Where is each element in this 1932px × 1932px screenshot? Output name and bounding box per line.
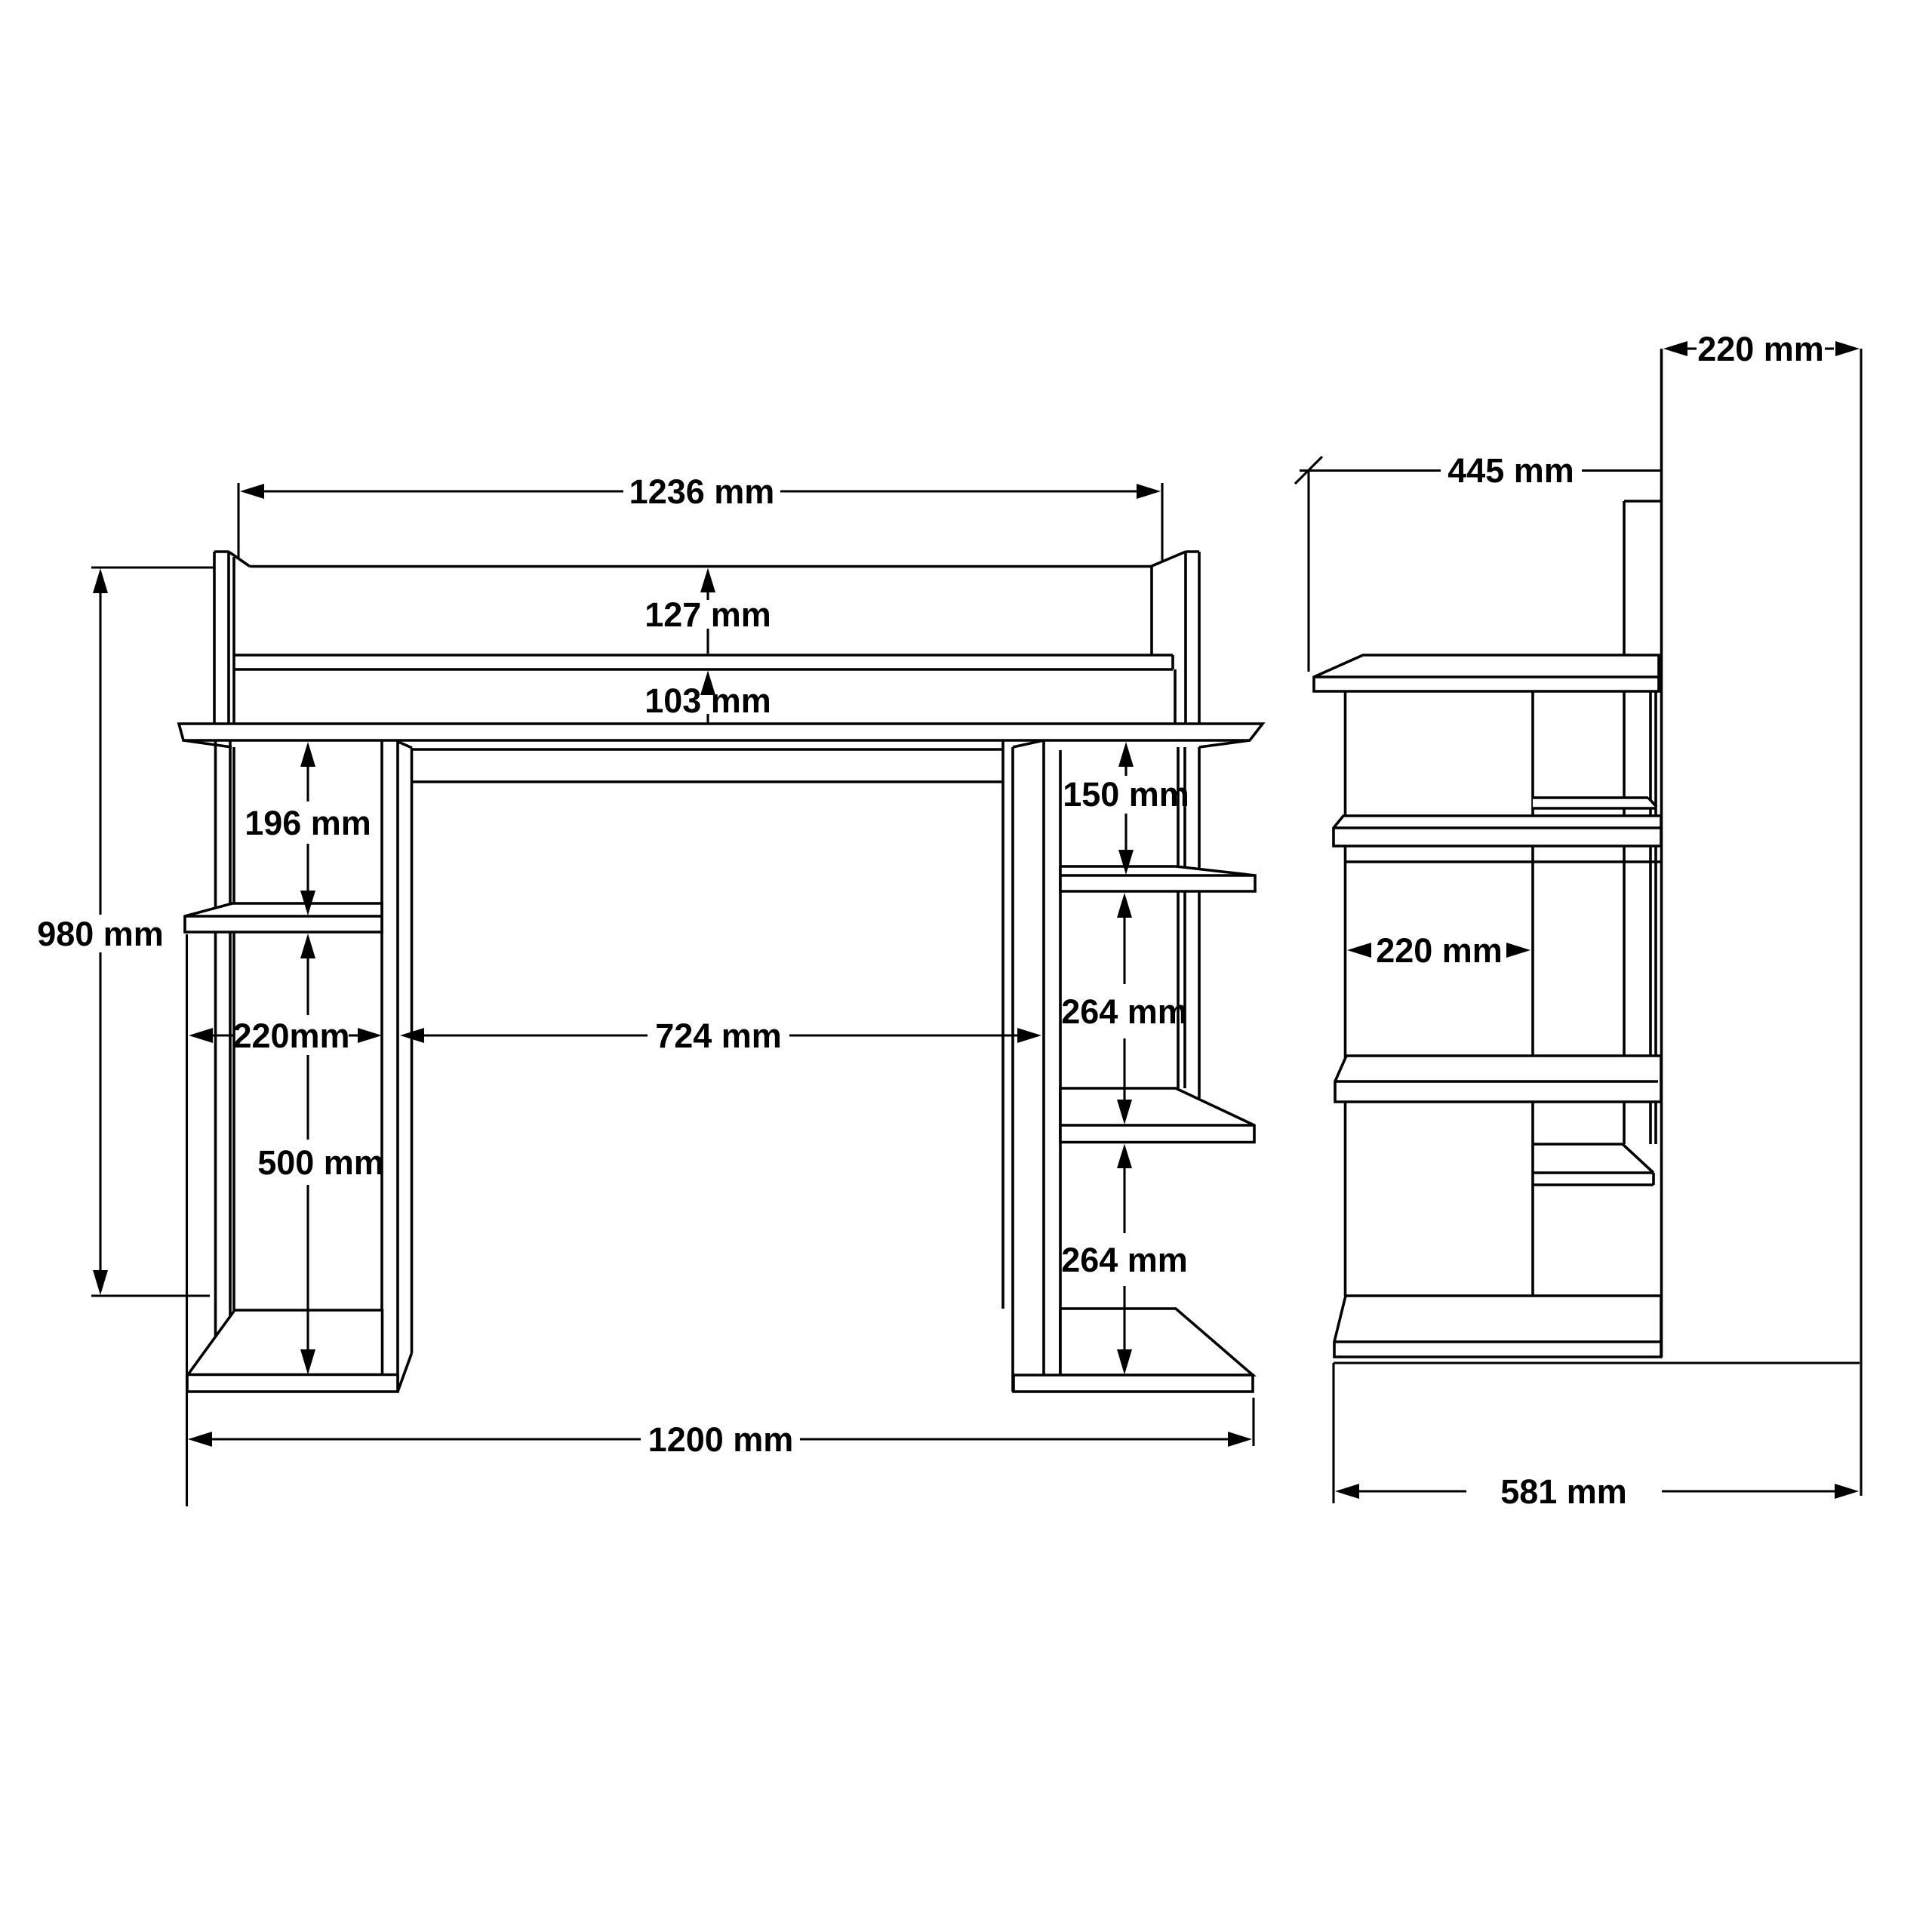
svg-text:1236 mm: 1236 mm <box>629 472 775 511</box>
svg-text:264 mm: 264 mm <box>1061 1241 1188 1279</box>
svg-text:724 mm: 724 mm <box>655 1017 782 1055</box>
svg-text:264 mm: 264 mm <box>1061 992 1188 1031</box>
svg-text:196 mm: 196 mm <box>245 804 371 842</box>
svg-text:220 mm: 220 mm <box>1697 330 1824 368</box>
svg-text:980 mm: 980 mm <box>37 915 164 953</box>
svg-text:150 mm: 150 mm <box>1063 775 1189 814</box>
svg-text:220 mm: 220 mm <box>1376 931 1503 970</box>
svg-text:220mm: 220mm <box>232 1017 349 1055</box>
svg-text:1200 mm: 1200 mm <box>648 1420 794 1459</box>
svg-text:127 mm: 127 mm <box>645 595 771 634</box>
svg-text:445 mm: 445 mm <box>1447 451 1574 490</box>
svg-text:103 mm: 103 mm <box>645 681 771 720</box>
svg-text:581 mm: 581 mm <box>1500 1472 1627 1511</box>
svg-text:500 mm: 500 mm <box>257 1143 384 1182</box>
